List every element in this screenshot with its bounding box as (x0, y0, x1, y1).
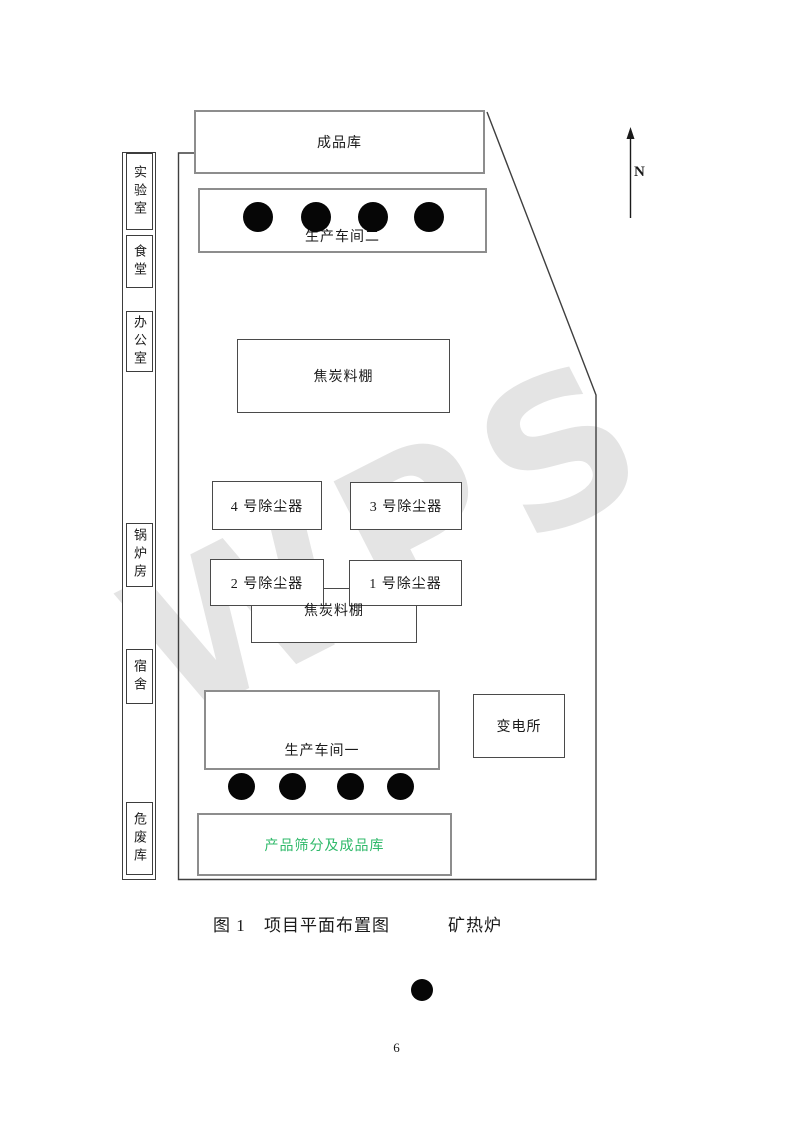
building-dust-collector-2: 2 号除尘器 (210, 559, 324, 606)
building-workshop-1: 生产车间一 (204, 690, 440, 770)
building-laboratory: 实验室 (126, 153, 153, 230)
legend-furnace-label: 矿热炉 (448, 911, 502, 936)
building-dust-collector-3: 3 号除尘器 (350, 482, 462, 530)
building-dormitory: 宿舍 (126, 649, 153, 704)
furnace-circle (301, 202, 331, 232)
furnace-circle (337, 773, 364, 800)
building-workshop-2: 生产车间二 (198, 188, 487, 253)
building-coke-shed-lower-label: 焦炭料棚 (251, 600, 417, 620)
building-office: 办公室 (126, 311, 153, 372)
building-product-screening-warehouse: 产品筛分及成品库 (197, 813, 452, 876)
furnace-circle (243, 202, 273, 232)
document-page: WPS N 实验室 食堂 办公室 锅炉房 宿舍 危废库 成品库 生产车间二 焦炭… (0, 0, 793, 1122)
building-substation: 变电所 (473, 694, 565, 758)
north-arrow-head-icon (627, 127, 635, 139)
building-hazardous-waste-warehouse: 危废库 (126, 802, 153, 875)
north-label: N (634, 164, 645, 181)
building-finished-goods-warehouse: 成品库 (194, 110, 485, 174)
figure-title: 项目平面布置图 (264, 911, 390, 936)
furnace-circle (358, 202, 388, 232)
furnace-circle (387, 773, 414, 800)
page-number: 6 (0, 1040, 793, 1056)
furnace-circle (414, 202, 444, 232)
building-dust-collector-4: 4 号除尘器 (212, 481, 322, 530)
legend-furnace-circle-icon (411, 979, 433, 1001)
building-boiler-room: 锅炉房 (126, 523, 153, 587)
figure-number: 图 1 (213, 911, 246, 936)
building-coke-shed-upper: 焦炭料棚 (237, 339, 450, 413)
furnace-circle (279, 773, 306, 800)
furnace-circle (228, 773, 255, 800)
building-canteen: 食堂 (126, 235, 153, 288)
